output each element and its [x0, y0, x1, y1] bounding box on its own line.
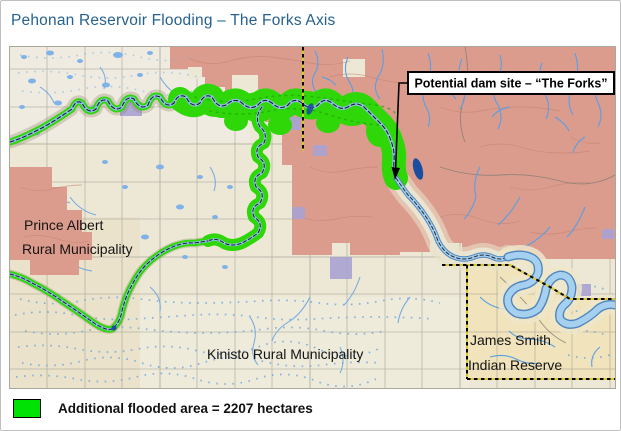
map-image: Prince Albert Rural Municipality Kinisto… — [10, 47, 615, 388]
legend-flood-swatch — [13, 399, 41, 418]
label-prince-albert-line1: Prince Albert — [24, 217, 103, 233]
legend-label: Additional flooded area = 2207 hectares — [58, 401, 313, 416]
annotation-text: Potential dam site – “The Forks” — [414, 77, 607, 91]
map-container: Prince Albert Rural Municipality Kinisto… — [9, 46, 616, 389]
app-window: Pehonan Reservoir Flooding – The Forks A… — [0, 0, 621, 431]
page-title: Pehonan Reservoir Flooding – The Forks A… — [11, 12, 336, 30]
label-kinisto: Kinisto Rural Municipality — [207, 346, 363, 362]
label-prince-albert-line2: Rural Municipality — [22, 241, 132, 257]
label-james-smith-line1: James Smith — [470, 332, 551, 348]
label-james-smith-line2: Indian Reserve — [468, 357, 562, 373]
